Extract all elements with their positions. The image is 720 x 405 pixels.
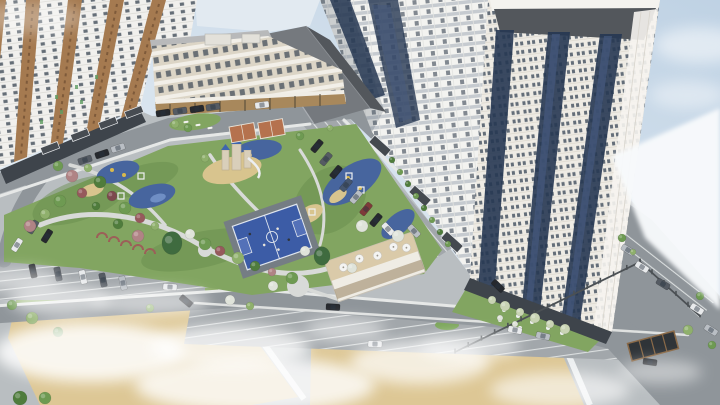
rooftop-box — [242, 34, 260, 43]
green-balcony — [40, 120, 43, 124]
render-canvas — [0, 0, 720, 405]
tree — [13, 391, 27, 405]
fence-post — [547, 304, 549, 309]
architectural-render — [0, 0, 720, 405]
fog-patch — [10, 284, 110, 316]
fence-post — [586, 284, 588, 289]
fog-patch — [420, 333, 520, 361]
tree — [66, 170, 78, 182]
fence-post — [626, 265, 628, 270]
tree — [560, 324, 570, 334]
tree — [184, 124, 192, 132]
car — [326, 303, 340, 310]
tree — [84, 164, 92, 172]
tree — [530, 313, 540, 323]
tree — [199, 238, 211, 250]
fence-post — [560, 297, 562, 302]
tree — [708, 341, 716, 349]
tree — [630, 249, 636, 255]
tree — [54, 195, 66, 207]
tree — [618, 234, 626, 242]
green-balcony — [80, 100, 83, 104]
tree — [516, 308, 524, 316]
tree — [392, 230, 404, 242]
tree — [107, 191, 117, 201]
fence-post — [520, 316, 522, 321]
green-balcony — [55, 95, 58, 99]
tree — [488, 296, 496, 304]
tree — [413, 193, 419, 199]
tree — [40, 209, 50, 219]
tree — [39, 392, 51, 404]
tree — [512, 321, 518, 327]
tree — [268, 281, 278, 291]
tree — [24, 220, 36, 232]
tree — [500, 301, 510, 311]
tree — [445, 241, 451, 247]
tree — [356, 220, 368, 232]
fog-patch — [150, 325, 310, 369]
fence-post — [675, 291, 677, 296]
spruce-tree — [162, 232, 182, 255]
fence-post — [651, 269, 653, 274]
green-balcony — [95, 75, 98, 79]
tree — [497, 315, 503, 321]
fence-post — [687, 302, 689, 307]
fence-post — [613, 271, 615, 276]
tree — [92, 202, 100, 210]
tree — [389, 157, 395, 163]
green-balcony — [60, 110, 63, 114]
tree — [250, 261, 260, 271]
tree — [429, 217, 435, 223]
tree — [300, 246, 310, 256]
tree — [296, 132, 304, 140]
tree — [683, 325, 693, 335]
tree — [53, 161, 63, 171]
fence-post — [600, 278, 602, 283]
tree — [268, 268, 276, 276]
tree — [437, 229, 443, 235]
tree — [232, 252, 244, 264]
tree — [225, 295, 235, 305]
fence-post — [573, 291, 575, 296]
rooftop-box — [205, 34, 231, 45]
tree — [215, 246, 225, 256]
tree — [286, 272, 298, 284]
fog-patch — [618, 360, 702, 384]
tree — [397, 169, 403, 175]
fence-post — [494, 329, 496, 334]
tree — [119, 202, 131, 214]
fog-patch — [305, 318, 385, 342]
spruce-tree — [314, 247, 330, 265]
tree — [113, 219, 123, 229]
tree — [347, 263, 357, 273]
tree — [185, 229, 195, 239]
tree — [421, 205, 427, 211]
tree — [77, 188, 87, 198]
tree — [132, 230, 144, 242]
car — [255, 101, 270, 109]
tree — [135, 213, 145, 223]
tree — [151, 222, 159, 230]
tree — [171, 120, 179, 128]
tree — [246, 302, 254, 310]
tree — [327, 125, 333, 131]
tree — [405, 181, 411, 187]
tree — [201, 154, 209, 162]
tree — [94, 176, 106, 188]
tree — [546, 320, 554, 328]
green-balcony — [75, 85, 78, 89]
